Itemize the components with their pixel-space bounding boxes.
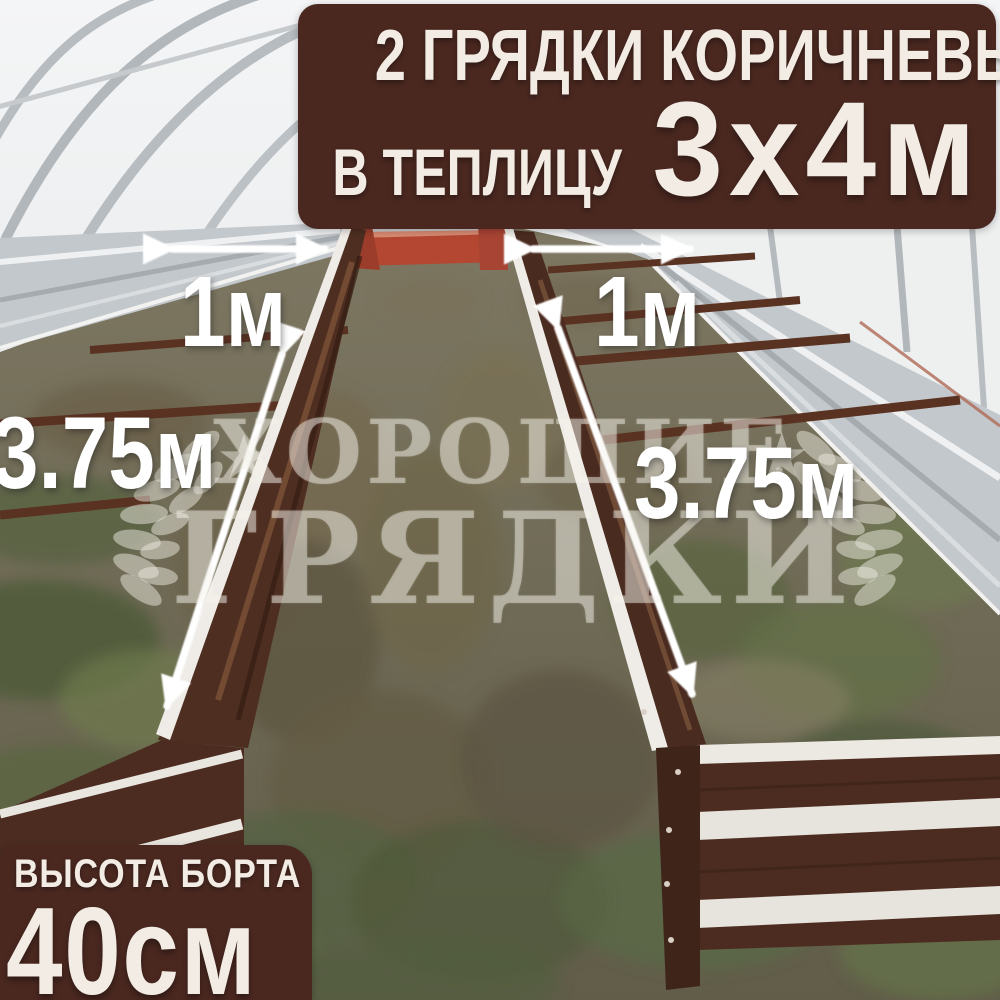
label-left-bed-width: 1м [180,262,286,362]
title-banner: 2 ГРЯДКИ КОРИЧНЕВЫЕ В ТЕПЛИЦУ 3х4м [298,4,996,229]
label-right-bed-width: 1м [594,262,700,362]
title-line2-prefix: В ТЕПЛИЦУ [332,139,621,205]
greenhouse-size-value: 3х4м [653,95,982,205]
product-image: ХОРОШИЕ ГРЯДКИ ★ ★ 1м 1м 3.75м 3.75м 2 Г… [0,0,1000,1000]
star-icon: ★ [216,428,272,490]
board-height-value: 40см [6,897,257,1000]
title-line2: В ТЕПЛИЦУ 3х4м [241,95,983,205]
label-left-bed-length: 3.75м [0,402,217,504]
board-height-banner: ВЫСОТА БОРТА 40см [0,845,312,1000]
label-right-bed-length: 3.75м [634,432,859,534]
